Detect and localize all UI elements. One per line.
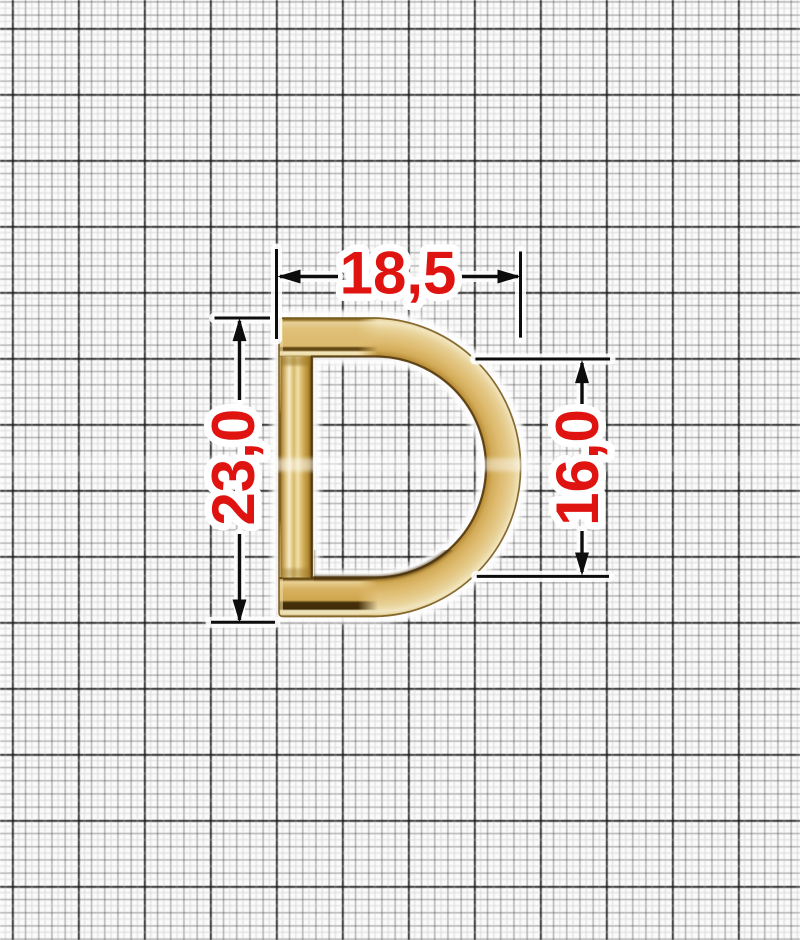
svg-text:18,5: 18,5 bbox=[340, 240, 457, 307]
svg-text:16,0: 16,0 bbox=[544, 409, 611, 526]
svg-text:23,0: 23,0 bbox=[200, 409, 267, 526]
